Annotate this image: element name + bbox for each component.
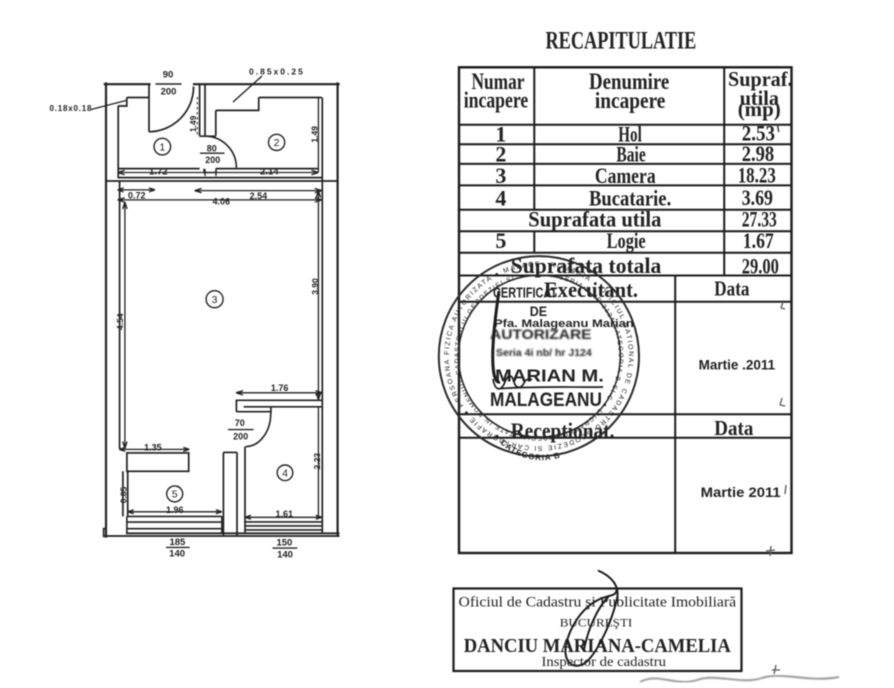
svg-text:1: 1 (159, 141, 165, 153)
svg-text:2.23: 2.23 (312, 453, 322, 470)
svg-text:incapere: incapere (595, 87, 666, 113)
svg-text:70: 70 (235, 418, 245, 428)
svg-text:3: 3 (212, 294, 218, 306)
svg-text:5: 5 (172, 489, 178, 501)
svg-text:80: 80 (207, 144, 217, 154)
svg-text:3.90: 3.90 (310, 278, 320, 295)
svg-text:incapere: incapere (464, 86, 529, 113)
svg-text:0.18x0.18: 0.18x0.18 (50, 104, 93, 113)
svg-text:Data: Data (714, 278, 750, 301)
svg-text:29.00: 29.00 (742, 255, 779, 279)
svg-text:150: 150 (276, 537, 292, 548)
svg-text:1.61: 1.61 (276, 509, 294, 519)
svg-text:Camera: Camera (595, 164, 656, 188)
svg-text:0.85x0.25: 0.85x0.25 (249, 67, 305, 77)
svg-text:4: 4 (495, 185, 506, 210)
svg-text:4.06: 4.06 (213, 196, 231, 206)
svg-text:RECAPITULATIE: RECAPITULATIE (546, 26, 697, 55)
svg-text:1.49: 1.49 (188, 115, 198, 132)
svg-text:18.23: 18.23 (738, 165, 776, 189)
svg-text:2.14: 2.14 (260, 166, 279, 177)
svg-text:BUCUREŞTI: BUCUREŞTI (560, 616, 633, 629)
svg-text:4: 4 (282, 468, 288, 480)
svg-text:CERTIFICAT: CERTIFICAT (493, 284, 557, 301)
svg-text:1.76: 1.76 (271, 383, 289, 393)
svg-text:140: 140 (277, 550, 293, 561)
svg-text:140: 140 (169, 549, 185, 560)
svg-text:1.35: 1.35 (144, 443, 162, 453)
svg-text:Logie: Logie (607, 230, 646, 254)
svg-text:Martie .2011: Martie .2011 (699, 358, 776, 373)
svg-text:4.54: 4.54 (115, 313, 125, 330)
svg-text:1.67: 1.67 (743, 229, 774, 253)
svg-text:1.72: 1.72 (149, 166, 168, 177)
svg-text:1.96: 1.96 (166, 505, 184, 515)
svg-text:0.72: 0.72 (128, 191, 146, 201)
svg-text:3.69: 3.69 (742, 186, 773, 210)
svg-text:2: 2 (274, 137, 280, 149)
svg-text:185: 185 (169, 537, 186, 548)
svg-text:Seria 4i nb/ hr J124: Seria 4i nb/ hr J124 (496, 347, 592, 359)
svg-text:MALAGEANU: MALAGEANU (490, 389, 602, 410)
svg-text:2.98: 2.98 (742, 143, 774, 167)
svg-text:200: 200 (233, 432, 248, 442)
svg-text:(mp): (mp) (738, 97, 781, 121)
svg-text:Martie 2011: Martie 2011 (701, 486, 781, 501)
svg-text:5: 5 (495, 228, 506, 253)
svg-text:Oficiul de Cadastru şi Publici: Oficiul de Cadastru şi Publicitate Imobi… (459, 594, 737, 611)
svg-text:Inspector de cadastru: Inspector de cadastru (542, 655, 666, 670)
svg-text:200: 200 (161, 87, 177, 98)
svg-text:200: 200 (205, 155, 220, 165)
svg-text:Data: Data (714, 417, 753, 440)
svg-text:AUTORIZARE: AUTORIZARE (490, 328, 592, 343)
svg-text:0.85: 0.85 (119, 486, 129, 503)
svg-text:3: 3 (495, 163, 506, 188)
svg-text:90: 90 (163, 70, 174, 81)
svg-text:1.49: 1.49 (310, 126, 320, 143)
svg-text:Suprafata utila: Suprafata utila (528, 207, 661, 232)
